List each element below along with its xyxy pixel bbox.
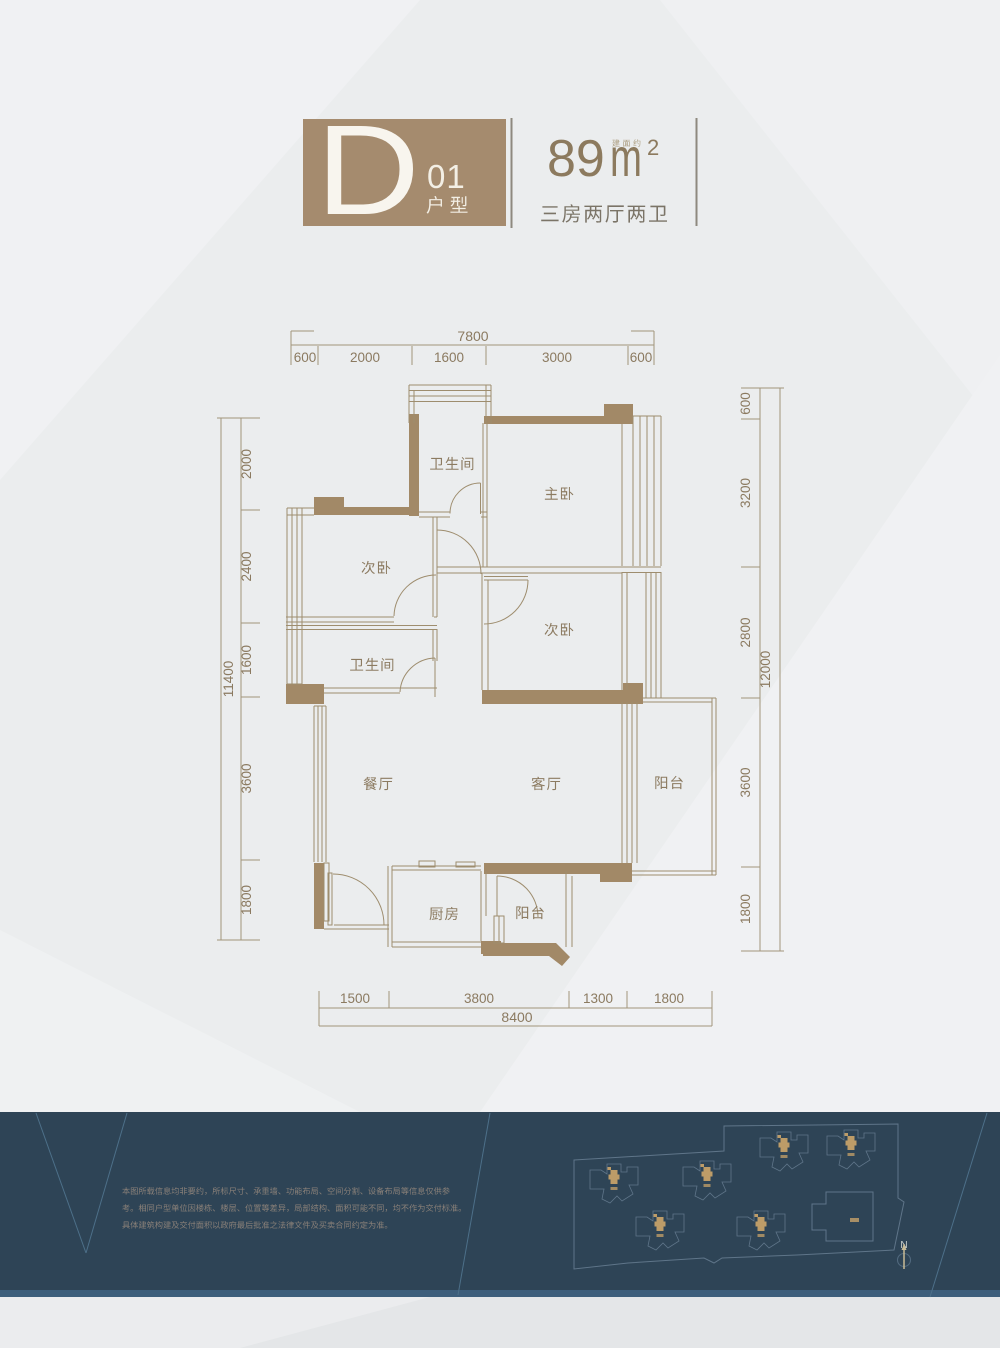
svg-text:3000: 3000 — [542, 350, 572, 365]
svg-text:01: 01 — [427, 158, 466, 195]
svg-text:3600: 3600 — [239, 763, 254, 793]
svg-text:2400: 2400 — [239, 551, 254, 581]
svg-text:2800: 2800 — [738, 617, 753, 647]
svg-text:7800: 7800 — [457, 328, 488, 344]
svg-text:2000: 2000 — [350, 350, 380, 365]
svg-text:12000: 12000 — [758, 651, 773, 689]
svg-text:3800: 3800 — [464, 991, 494, 1006]
svg-text:1300: 1300 — [583, 991, 613, 1006]
svg-text:600: 600 — [630, 350, 653, 365]
svg-text:1800: 1800 — [738, 894, 753, 924]
svg-text:2000: 2000 — [239, 449, 254, 479]
svg-text:600: 600 — [738, 392, 753, 415]
svg-text:1600: 1600 — [239, 645, 254, 675]
svg-text:11400: 11400 — [221, 661, 236, 698]
svg-text:D: D — [316, 98, 420, 241]
svg-text:1800: 1800 — [654, 991, 684, 1006]
svg-text:1600: 1600 — [434, 350, 464, 365]
svg-text:3200: 3200 — [738, 478, 753, 508]
svg-text:1800: 1800 — [239, 885, 254, 915]
svg-text:m: m — [610, 128, 642, 188]
svg-text:2: 2 — [647, 135, 659, 160]
svg-text:8400: 8400 — [501, 1009, 532, 1025]
svg-text:3600: 3600 — [738, 767, 753, 797]
svg-text:89: 89 — [547, 130, 605, 188]
svg-text:1500: 1500 — [340, 991, 370, 1006]
svg-text:600: 600 — [294, 350, 317, 365]
